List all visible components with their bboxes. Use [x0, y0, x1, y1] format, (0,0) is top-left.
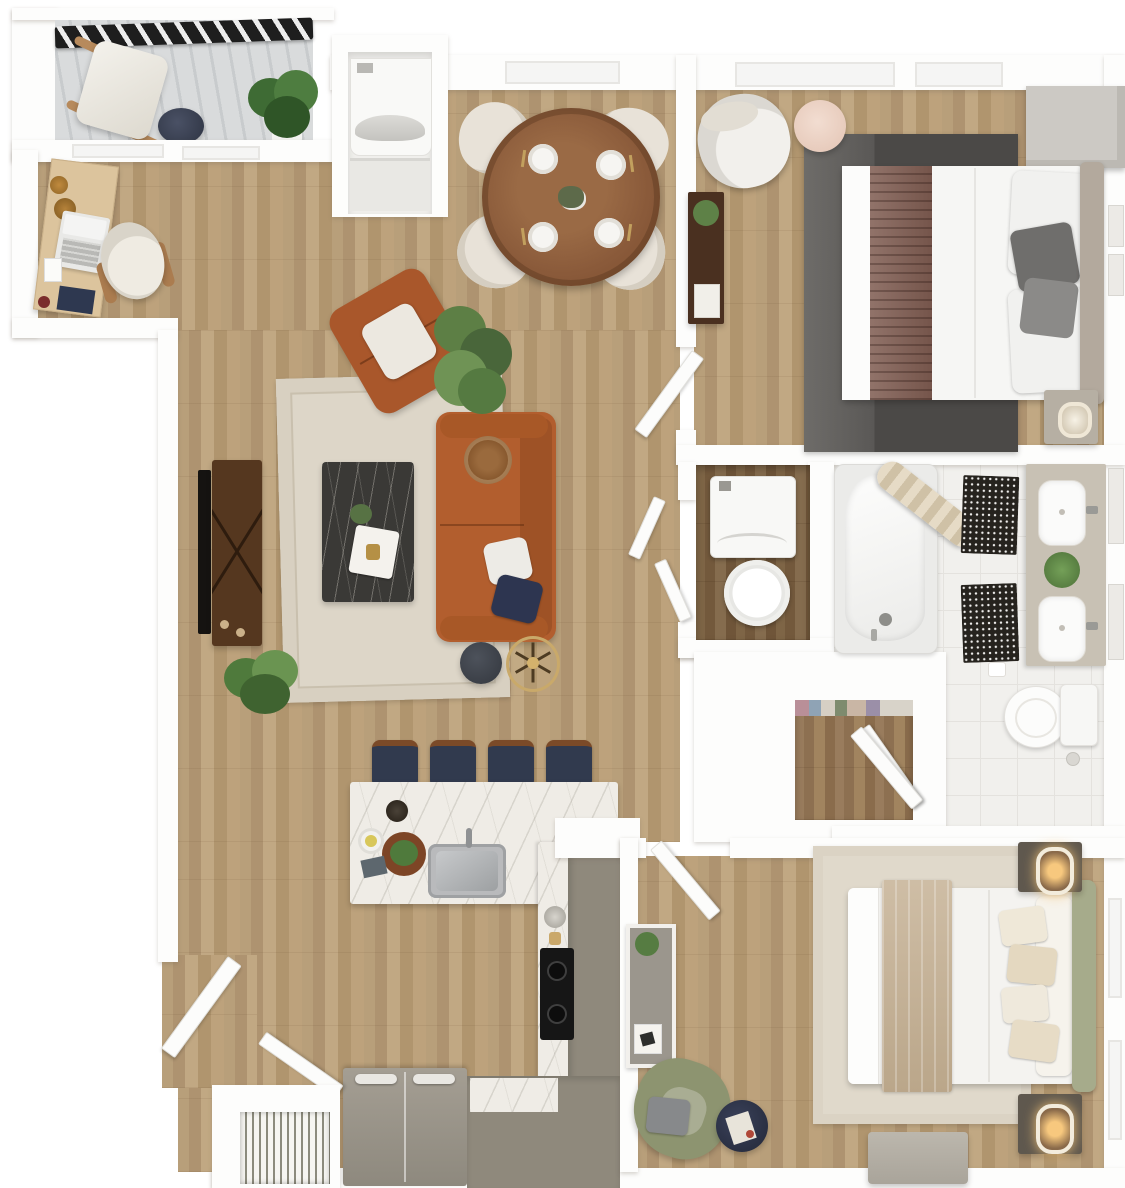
bar-stool [430, 740, 476, 788]
lemons [365, 835, 377, 847]
cooktop [540, 948, 574, 1040]
glowing-lamp [1036, 1104, 1074, 1154]
laundry-wall-right [808, 462, 834, 642]
balcony-wall-left [12, 8, 58, 160]
table-centerpiece [558, 186, 584, 208]
bath-mat [961, 475, 1020, 555]
wall-mirror [1108, 584, 1124, 660]
bar-stool [488, 740, 534, 788]
vessel-sink [1038, 596, 1086, 662]
nightstand-lamp [1058, 402, 1092, 438]
washer-door-band [355, 115, 425, 141]
laundry-basket [724, 560, 790, 626]
large-floor-plant [428, 306, 512, 418]
washer-front-curve [717, 533, 787, 554]
washer-detail [719, 481, 731, 491]
bar-stool [372, 740, 418, 788]
table-plant [350, 504, 372, 524]
kettle [544, 906, 566, 928]
console-knob [220, 620, 229, 629]
desk-trinket [38, 296, 50, 308]
fridge-handle [413, 1074, 455, 1084]
book [640, 1032, 656, 1047]
refrigerator [343, 1068, 467, 1186]
left-wall-main [158, 330, 178, 962]
side-table-accent [746, 1130, 754, 1138]
bed1-foot-fold [842, 166, 871, 400]
base-cabinet-counter [470, 1078, 558, 1112]
cutting-board [382, 832, 426, 876]
wall-art-frame [1108, 254, 1124, 296]
balcony-plant [248, 70, 318, 146]
console-knob [236, 628, 245, 637]
vessel-sink [1038, 480, 1086, 546]
tray-gold-item [366, 544, 380, 560]
place-setting [596, 150, 626, 180]
fridge-divider [404, 1072, 406, 1182]
bedroom1-wardrobe [1026, 86, 1125, 168]
tub-handle [871, 629, 877, 641]
rattan-pillow [464, 436, 512, 484]
kitchen-sink [428, 844, 506, 898]
burner [547, 961, 567, 981]
brass-accent-table [506, 636, 560, 692]
glowing-lamp [1036, 847, 1074, 895]
lounge-chair-cushion [74, 38, 171, 142]
dark-bowl [386, 800, 408, 822]
desk-outlet [44, 258, 62, 282]
bedroom2-side-table [716, 1100, 768, 1152]
bed2-crease [988, 890, 990, 1082]
bedroom2-nightstand [1018, 1094, 1082, 1154]
bedroom2-dresser [626, 924, 676, 1068]
sink-basin [436, 851, 498, 891]
bed2-pillow [998, 905, 1049, 947]
hvac-vent-grate [236, 1108, 334, 1188]
bed1-crease [974, 168, 976, 398]
coffee-table [322, 462, 414, 602]
small-floor-plant [224, 650, 308, 716]
bed1-headboard [1080, 162, 1104, 404]
sink-drain [1059, 509, 1065, 515]
toilet-flush-valve [1066, 752, 1080, 766]
bedroom1-window [915, 62, 1003, 87]
washer-panel [357, 63, 373, 73]
side-table-book [725, 1111, 756, 1145]
utility-shelf [350, 158, 430, 211]
dresser-tray [694, 284, 720, 318]
bed2-headboard [1072, 880, 1096, 1092]
bed1-gray-pillow [1019, 277, 1079, 339]
plant-leaves [458, 368, 506, 414]
toilet-bowl [1004, 686, 1068, 748]
balcony-side-table [158, 108, 204, 144]
floor-plan [0, 0, 1125, 1188]
desk-notebook [57, 286, 96, 315]
dresser-plant [693, 200, 719, 226]
bed2-pillow [1001, 984, 1050, 1024]
dining-window [505, 61, 620, 84]
plant-leaves [240, 674, 290, 714]
dresser-plant [635, 932, 659, 956]
bed1-runner [870, 166, 932, 400]
laundry-wall-left-upper [678, 462, 696, 500]
bedroom1-nightstand [1044, 390, 1098, 444]
console-x-leg [212, 504, 262, 599]
bedroom2-window [1108, 898, 1122, 998]
bed2-pillow [1008, 1019, 1061, 1063]
wall-art-frame [1108, 205, 1124, 247]
bath-mat [961, 583, 1020, 663]
top-wall-main [330, 55, 1125, 90]
sofa-seam [440, 524, 524, 526]
bedroom2-window [1108, 1040, 1122, 1140]
place-setting [594, 218, 624, 248]
sofa [436, 412, 556, 642]
laundry-washer [710, 476, 796, 558]
bed-1 [842, 162, 1104, 404]
tv-screen [198, 470, 211, 634]
fridge-handle [355, 1074, 397, 1084]
dark-side-table [460, 642, 502, 684]
stacked-washer-dryer [350, 58, 432, 156]
office-window [182, 146, 260, 160]
vanity-faucet [1086, 622, 1098, 630]
hanging-clothes [795, 700, 913, 716]
bedroom1-dresser [688, 192, 724, 324]
tub-faucet [879, 613, 892, 626]
bedroom1-window [735, 62, 895, 87]
bed2-runner [882, 880, 952, 1092]
armchair-gray-pillow [645, 1096, 691, 1136]
bar-stool [546, 740, 592, 788]
office-window [72, 144, 164, 158]
sink-drain [1059, 625, 1065, 631]
toilet-seat-ring [1015, 698, 1057, 738]
toilet-paper-holder [988, 662, 1006, 677]
bed-2 [848, 880, 1096, 1092]
base-cabinet-bottom [467, 1076, 620, 1188]
brass-hub [527, 657, 539, 669]
toilet-tank [1060, 684, 1098, 746]
bedroom2-bench [868, 1132, 968, 1184]
plant-leaves [264, 96, 310, 138]
lemon-plate [358, 828, 384, 854]
entry-floor [162, 955, 257, 1088]
board-greens [390, 840, 418, 866]
bed2-pillow [1006, 944, 1058, 987]
jar [549, 932, 561, 945]
tv-console [212, 460, 262, 646]
double-vanity [1026, 464, 1106, 666]
bed2-foot-fold [848, 888, 879, 1084]
burner [547, 1004, 567, 1024]
sink-faucet [466, 828, 472, 848]
place-setting [528, 222, 558, 252]
vanity-plant [1044, 552, 1080, 588]
desk-tray-small [50, 176, 68, 194]
place-setting [528, 144, 558, 174]
wall-mirror [1108, 468, 1124, 544]
vanity-faucet [1086, 506, 1098, 514]
bedroom2-nightstand [1018, 842, 1082, 892]
step-wall [12, 318, 178, 338]
blush-side-table [794, 100, 846, 152]
